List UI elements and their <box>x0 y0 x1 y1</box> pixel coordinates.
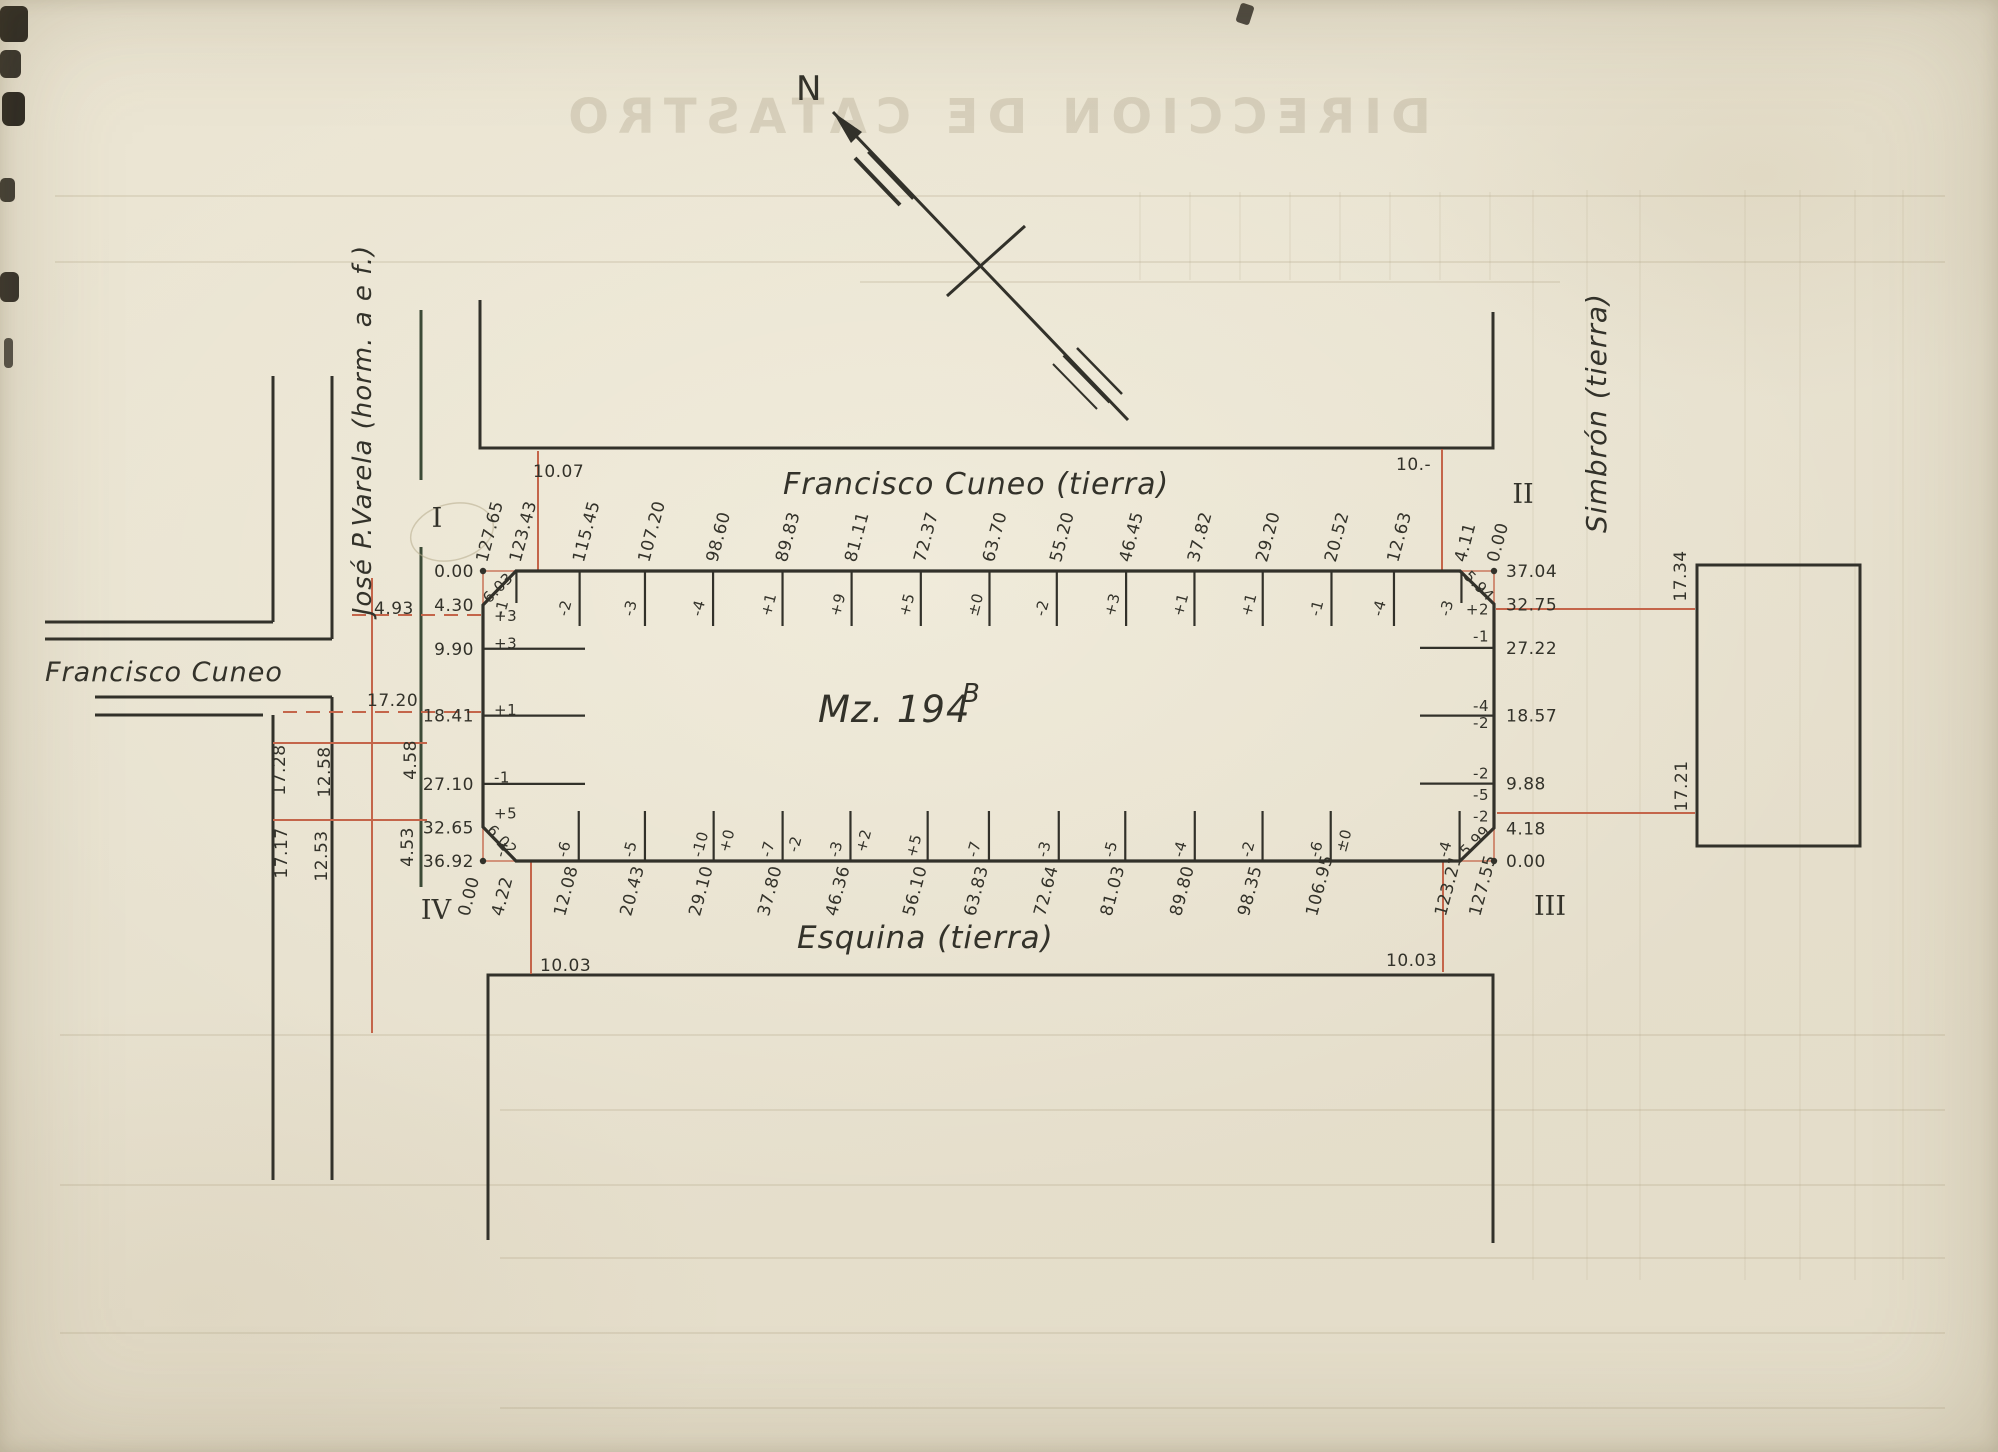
measure-west-dash-lower: 17.20 <box>367 691 418 711</box>
delta-label: -4 <box>1368 598 1390 618</box>
delta-label: -5 <box>1100 839 1122 859</box>
delta-label: -10 <box>688 829 712 859</box>
street-name-west-ew: Francisco Cuneo <box>45 657 283 688</box>
measurement-label: 4.18 <box>1506 819 1546 839</box>
delta-label: ±0 <box>1332 827 1355 854</box>
measure-west-col-a1: 17.28 <box>270 744 290 795</box>
block-label-sup: B <box>962 679 981 709</box>
measurement-label: 127.55 <box>1466 853 1501 919</box>
measure-east-lower: 17.21 <box>1672 760 1692 811</box>
measurement-label: 36.92 <box>423 852 474 872</box>
measurement-label: 0.00 <box>1506 852 1546 872</box>
measurement-ticks: 127.65123.43-1115.45-2107.20-398.60-489.… <box>423 499 1557 919</box>
delta-label: -4 <box>1473 697 1489 715</box>
measurement-label: 27.10 <box>423 775 474 795</box>
connector-bottom-right: 10.03 <box>1386 951 1437 971</box>
measurement-label: 127.65 <box>473 499 508 565</box>
street-name-bottom: Esquina (tierra) <box>797 920 1054 956</box>
delta-label: +1 <box>494 701 517 719</box>
delta-label: -2 <box>554 598 576 618</box>
corner-numeral-i: I <box>432 503 443 534</box>
measurement-label: 89.83 <box>772 510 805 565</box>
measurement-label: 37.82 <box>1184 510 1217 565</box>
measure-west-col-a2: 17.17 <box>272 827 292 878</box>
measure-west-seg-upper: 4.58 <box>401 740 421 780</box>
delta-label: +5 <box>902 832 925 859</box>
measurement-label: 4.22 <box>488 875 518 919</box>
delta-label: +1 <box>1169 591 1192 618</box>
delta-label: -5 <box>1473 786 1489 804</box>
delta-label: -1 <box>1473 627 1489 645</box>
measurement-label: 37.04 <box>1506 562 1557 582</box>
measurement-label: 18.41 <box>423 707 474 727</box>
block-label: Mz. 194 <box>818 688 971 731</box>
measurement-label: 18.57 <box>1506 707 1557 727</box>
delta-label: -7 <box>963 839 985 859</box>
delta-label: -3 <box>619 598 641 618</box>
measurement-label: 12.08 <box>550 864 583 919</box>
delta-label: -2 <box>1473 714 1489 732</box>
measure-west-col-b2: 12.53 <box>312 830 332 881</box>
measurement-label: 9.90 <box>434 640 474 660</box>
measurement-label: 72.64 <box>1030 864 1063 919</box>
street-name-right: Simbrón (tierra) <box>1580 293 1613 533</box>
delta-label: +1 <box>757 591 780 618</box>
north-label: N <box>796 69 821 109</box>
measurement-label: 32.65 <box>423 819 474 839</box>
street-name-top: Francisco Cuneo (tierra) <box>783 467 1169 502</box>
chamfer-bottom-right: 5.99 <box>1456 822 1494 860</box>
delta-label: +0 <box>715 827 738 854</box>
delta-label: -6 <box>553 839 575 859</box>
delta-label: +5 <box>494 805 517 823</box>
measure-west-seg-lower: 4.53 <box>398 827 418 867</box>
delta-label: +5 <box>895 591 918 618</box>
measurement-label: 29.20 <box>1252 510 1285 565</box>
cadastral-plan-scan: DIRECCION DE CATASTRO N <box>0 0 1998 1452</box>
measurement-label: 115.45 <box>569 499 604 565</box>
delta-label: -2 <box>1237 839 1259 859</box>
delta-label: -2 <box>784 834 806 854</box>
plan-drawing: DIRECCION DE CATASTRO N <box>0 0 1998 1452</box>
connector-top-right: 10.- <box>1396 455 1431 475</box>
measurement-label: 4.30 <box>434 596 474 616</box>
measurement-label: 107.20 <box>635 499 670 565</box>
delta-label: -3 <box>1033 839 1055 859</box>
delta-label: -4 <box>688 598 710 618</box>
delta-label: +1 <box>1237 591 1260 618</box>
measurement-label: 72.37 <box>910 510 943 565</box>
delta-label: -7 <box>757 839 779 859</box>
measurement-label: 0.00 <box>455 875 485 919</box>
delta-label: -3 <box>825 839 847 859</box>
measurement-label: 81.11 <box>841 510 874 565</box>
delta-label: -3 <box>1436 598 1458 618</box>
measurement-label: 37.80 <box>754 864 787 919</box>
ghost-mirrored-title: DIRECCION DE CATASTRO <box>559 89 1431 145</box>
south-block-outline <box>488 975 1493 1243</box>
measurement-label: 46.45 <box>1116 510 1149 565</box>
measurement-label: 29.10 <box>685 864 718 919</box>
measurement-label: 55.20 <box>1046 510 1079 565</box>
delta-label: +3 <box>494 607 517 625</box>
measurement-label: 27.22 <box>1506 639 1557 659</box>
delta-label: -2 <box>1473 764 1489 782</box>
delta-label: +9 <box>826 591 849 618</box>
measurement-label: 89.80 <box>1166 864 1199 919</box>
delta-label: -1 <box>1306 598 1328 618</box>
delta-label: +3 <box>494 634 517 652</box>
measurement-label: 63.70 <box>979 510 1012 565</box>
scan-artifacts <box>0 2 1255 368</box>
east-block-outline <box>1697 565 1860 846</box>
delta-label: -2 <box>1031 598 1053 618</box>
corner-numeral-ii: II <box>1512 479 1533 510</box>
north-block-outline <box>480 300 1493 448</box>
measurement-label: 0.00 <box>1484 521 1514 565</box>
measurement-label: 123.43 <box>506 499 541 565</box>
delta-label: -1 <box>494 769 510 787</box>
measure-west-dash-upper: 4.93 <box>374 599 414 619</box>
delta-label: +2 <box>852 827 875 854</box>
measurement-label: 32.75 <box>1506 596 1557 616</box>
delta-label: ±0 <box>964 591 987 618</box>
street-name-west-ns: José P.Varela (horm. a e f.) <box>348 245 378 621</box>
measurement-label: 98.35 <box>1234 864 1267 919</box>
measurement-label: 4.11 <box>1451 521 1481 565</box>
connector-top-left: 10.07 <box>533 462 584 482</box>
measurement-label: 0.00 <box>434 562 474 582</box>
delta-label: -4 <box>1169 839 1191 859</box>
corner-numeral-iv: IV <box>421 895 452 926</box>
connector-bottom-left: 10.03 <box>540 956 591 976</box>
measurement-label: 12.63 <box>1384 510 1417 565</box>
measurement-label: 63.83 <box>960 864 993 919</box>
measurement-label: 9.88 <box>1506 775 1546 795</box>
delta-label: -5 <box>619 839 641 859</box>
measurement-label: 20.52 <box>1321 510 1354 565</box>
measure-east-upper: 17.34 <box>1671 550 1691 601</box>
measurement-label: 56.10 <box>899 864 932 919</box>
measure-west-col-b1: 12.58 <box>315 746 335 797</box>
measurement-label: 20.43 <box>616 864 649 919</box>
measurement-label: 98.60 <box>703 510 736 565</box>
measurement-label: 81.03 <box>1097 864 1130 919</box>
measurement-label: 46.36 <box>822 864 855 919</box>
corner-numeral-iii: III <box>1534 891 1566 922</box>
delta-label: +3 <box>1101 591 1124 618</box>
